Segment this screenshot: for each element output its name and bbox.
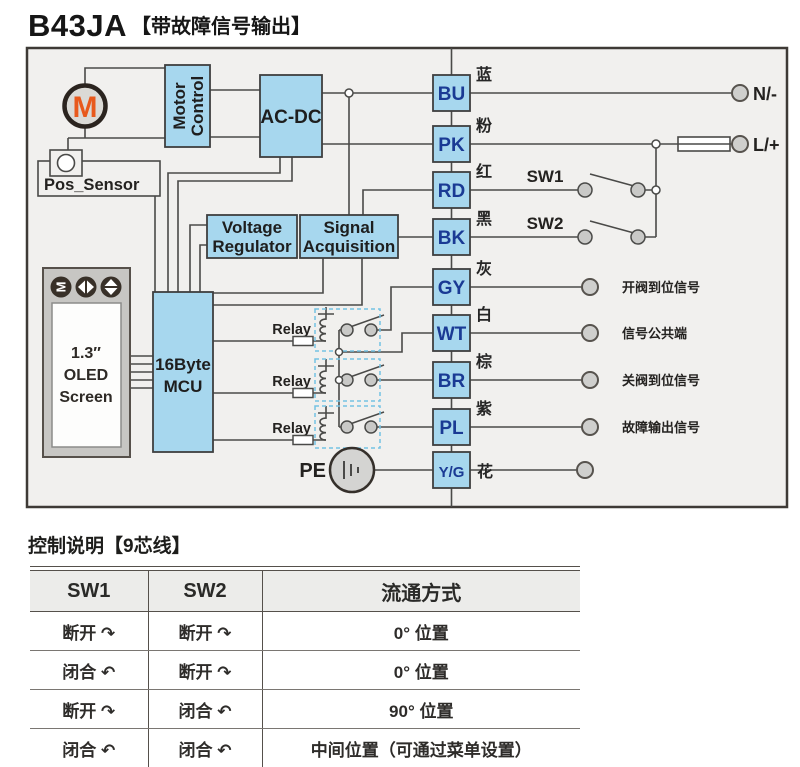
cell-sw1: 闭合 ↶ <box>30 651 148 690</box>
cell-sw2: 闭合 ↶ <box>148 729 262 767</box>
terminal-code-pl: PL <box>439 418 464 439</box>
table-row: 闭合 ↶ 闭合 ↶ 中间位置（可通过菜单设置） <box>30 729 580 767</box>
signal-open-ok: 开阀到位信号 <box>622 280 700 295</box>
wire-color-cn-br: 棕 <box>476 352 492 371</box>
sw1-label: SW1 <box>527 167 564 186</box>
terminal-code-rd: RD <box>438 181 465 202</box>
fuse-icon <box>678 137 730 151</box>
table-row: 闭合 ↶ 断开 ↷ 0° 位置 <box>30 651 580 690</box>
signal-acquisition-line2: Acquisition <box>303 237 396 256</box>
cell-mode: 0° 位置 <box>262 612 580 651</box>
control-table: SW1 SW2 流通方式 断开 ↷ 断开 ↷ 0° 位置 闭合 ↶ 断开 ↷ 0… <box>30 566 580 767</box>
page: B43JA【带故障信号输出】 <box>0 0 800 767</box>
cell-mode: 0° 位置 <box>262 651 580 690</box>
voltage-regulator-line2: Regulator <box>212 237 292 256</box>
col-header-sw1: SW1 <box>30 571 148 612</box>
acdc-box: AC-DC <box>260 75 322 157</box>
relay-1-label: Relay <box>272 322 311 338</box>
oled-line2: OLED <box>64 367 108 384</box>
resistor-icon <box>293 389 313 398</box>
pe-label: PE <box>299 460 326 482</box>
terminal-code-bu: BU <box>438 84 465 105</box>
voltage-regulator-line1: Voltage <box>222 218 282 237</box>
m-button-icon: M <box>54 282 69 293</box>
wire-color-cn-pl: 紫 <box>476 399 492 418</box>
wire-color-cn-yg: 花 <box>477 462 493 481</box>
table-header-row: SW1 SW2 流通方式 <box>30 571 580 612</box>
col-header-mode: 流通方式 <box>262 571 580 612</box>
relay-3-label: Relay <box>272 421 311 437</box>
motor-control-box: Motor Control <box>165 65 210 147</box>
motor-control-line1: Motor <box>170 82 189 130</box>
table-row: 断开 ↷ 断开 ↷ 0° 位置 <box>30 612 580 651</box>
wire-color-cn-rd: 红 <box>476 162 492 181</box>
terminal-code-wt: WT <box>437 324 467 345</box>
signal-acquisition-box: Signal Acquisition <box>300 215 398 258</box>
oled-line1: 1.3″ <box>71 345 101 362</box>
motor-control-line2: Control <box>188 76 207 136</box>
cell-sw2: 断开 ↷ <box>148 651 262 690</box>
sw2-label: SW2 <box>527 214 564 233</box>
cell-sw1: 断开 ↷ <box>30 612 148 651</box>
mcu-box: 16Byte MCU <box>153 292 213 452</box>
motor-icon: M <box>65 86 106 127</box>
live-label: L/+ <box>753 135 780 155</box>
wiring-diagram: M Motor Control AC-DC Pos_Sensor Voltage <box>0 0 800 515</box>
resistor-icon <box>293 436 313 445</box>
terminal-code-br: BR <box>438 371 466 392</box>
cell-sw1: 闭合 ↶ <box>30 729 148 767</box>
pos-sensor-label: Pos_Sensor <box>44 176 140 194</box>
cell-mode: 90° 位置 <box>262 690 580 729</box>
cell-sw1: 断开 ↷ <box>30 690 148 729</box>
diagram-frame <box>27 48 787 507</box>
signal-fault: 故障输出信号 <box>622 420 700 435</box>
acdc-label: AC-DC <box>260 107 321 128</box>
table-row: 断开 ↷ 闭合 ↶ 90° 位置 <box>30 690 580 729</box>
cell-mode: 中间位置（可通过菜单设置） <box>262 729 580 767</box>
oled-line3: Screen <box>59 389 112 406</box>
cell-sw2: 闭合 ↶ <box>148 690 262 729</box>
relay-2-label: Relay <box>272 374 311 390</box>
wire-color-cn-pk: 粉 <box>476 116 492 135</box>
wire-color-cn-bu: 蓝 <box>476 65 492 84</box>
wire-color-cn-bk: 黑 <box>476 210 492 228</box>
voltage-regulator-box: Voltage Regulator <box>207 215 297 258</box>
terminal-code-pk: PK <box>438 135 465 156</box>
signal-close-ok: 关阀到位信号 <box>622 373 700 388</box>
cell-sw2: 断开 ↷ <box>148 612 262 651</box>
terminal-code-gy: GY <box>438 278 466 299</box>
motor-label: M <box>73 91 98 124</box>
svg-text:M: M <box>54 282 69 293</box>
signal-acquisition-line1: Signal <box>323 218 374 237</box>
col-header-sw2: SW2 <box>148 571 262 612</box>
mcu-line1: 16Byte <box>155 355 211 374</box>
neutral-label: N/- <box>753 84 777 104</box>
wire-color-cn-gy: 灰 <box>476 259 492 278</box>
terminal-code-bk: BK <box>438 228 466 249</box>
resistor-icon <box>293 337 313 346</box>
signal-common: 信号公共端 <box>622 326 687 341</box>
oled-panel: M 1.3″ OLED Screen <box>43 268 130 457</box>
control-table-heading: 控制说明【9芯线】 <box>28 531 191 558</box>
wire-color-cn-wt: 白 <box>476 305 492 324</box>
mcu-line2: MCU <box>164 377 203 396</box>
terminal-code-yg: Y/G <box>439 464 465 481</box>
